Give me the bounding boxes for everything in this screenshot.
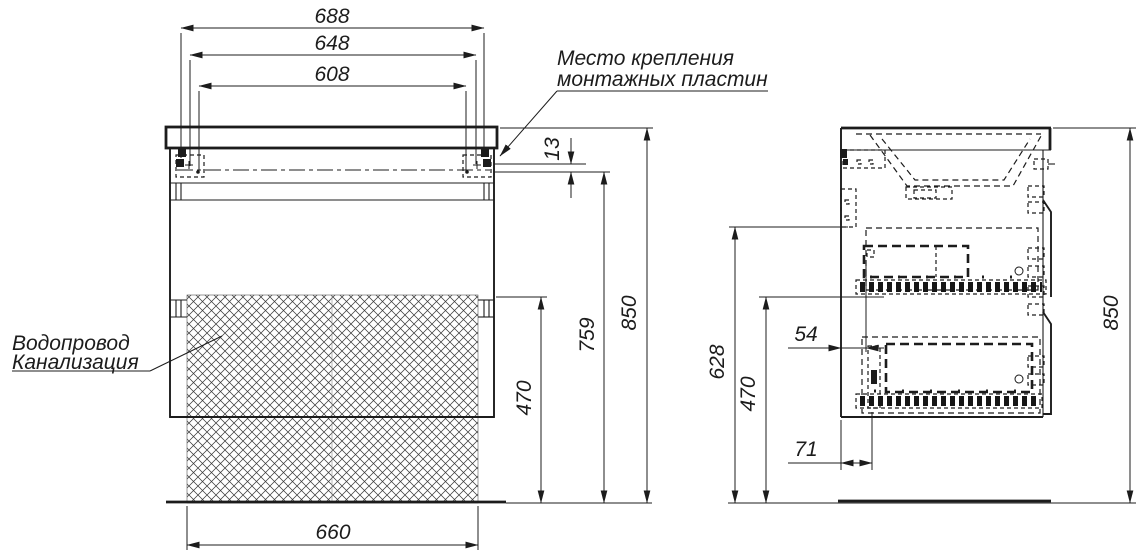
dim-660: 660 xyxy=(187,506,478,550)
dim-648: 648 xyxy=(190,32,476,166)
dim-470-side-label: 470 xyxy=(737,376,760,411)
front-view xyxy=(166,127,652,503)
technical-drawing-page: 688 648 608 13 470 759 xyxy=(0,0,1138,553)
dim-71-label: 71 xyxy=(794,438,817,461)
dim-648-label: 648 xyxy=(314,32,349,55)
dim-608-label: 608 xyxy=(314,63,349,86)
dim-850-side-label: 850 xyxy=(1100,295,1123,330)
dim-628: 628 xyxy=(706,227,848,503)
front-countertop xyxy=(166,127,497,148)
front-top-rail xyxy=(170,183,494,200)
note-mounting-line2: монтажных пластин xyxy=(557,68,768,91)
sink-drain xyxy=(906,187,952,199)
side-dimensions: 628 470 54 71 850 xyxy=(706,128,1136,503)
dim-13: 13 xyxy=(494,137,610,198)
dim-54: 54 xyxy=(788,262,884,352)
side-front-bracket xyxy=(1034,159,1055,169)
plumbing-zone-hatch xyxy=(187,295,478,503)
side-sink-bowl xyxy=(856,134,1041,199)
side-view xyxy=(728,128,1136,503)
side-hinge-clips xyxy=(1015,186,1044,385)
dim-628-label: 628 xyxy=(706,344,729,379)
side-upper-drawer xyxy=(856,228,1046,294)
side-floor-line xyxy=(728,501,1136,503)
dim-470-front: 470 xyxy=(496,297,547,503)
dim-470-front-label: 470 xyxy=(513,380,536,415)
dim-759: 759 xyxy=(576,172,604,503)
dim-660-label: 660 xyxy=(315,521,350,544)
dim-850-front: 850 xyxy=(500,128,653,503)
dim-759-label: 759 xyxy=(576,317,599,352)
side-back-slot xyxy=(841,189,856,227)
dim-850-front-label: 850 xyxy=(618,295,641,330)
dim-54-label: 54 xyxy=(794,323,817,346)
note-mounting-line1: Место крепления xyxy=(557,47,734,70)
mounting-plate-right xyxy=(463,148,491,177)
dim-608: 608 xyxy=(199,63,466,171)
side-mounting-plate xyxy=(840,149,885,168)
vanity-installation-drawing: 688 648 608 13 470 759 xyxy=(0,0,1138,553)
dim-13-label: 13 xyxy=(541,137,564,161)
dim-688-label: 688 xyxy=(314,5,349,28)
dim-850-side: 850 xyxy=(1053,128,1136,503)
dim-71: 71 xyxy=(788,412,872,470)
front-floor-line xyxy=(166,502,652,503)
